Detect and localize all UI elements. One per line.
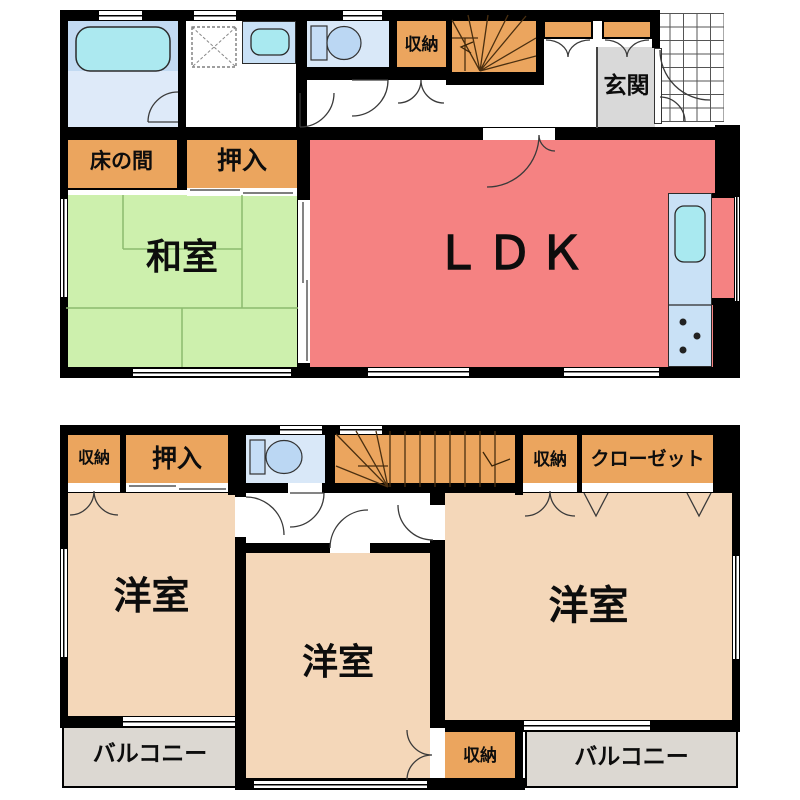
- room-label-storage-f2c: 収納: [445, 732, 515, 778]
- door-opening: [430, 728, 445, 778]
- room-label-closet-f2: クローゼット: [582, 435, 713, 483]
- wall: [60, 425, 740, 435]
- room-label-ldk: ＬＤＫ: [310, 195, 715, 310]
- window-icon: [98, 10, 143, 21]
- front-door-leaf: [654, 48, 662, 124]
- bathroom-wet-area: [68, 21, 178, 71]
- room-label-washitsu: 和室: [66, 218, 298, 296]
- door-opening: [288, 483, 322, 493]
- window-icon: [732, 555, 740, 660]
- room-label-genkan: 玄関: [598, 60, 655, 110]
- room-label-oshiire-f1: 押入: [187, 135, 297, 188]
- wall: [713, 425, 732, 483]
- wall: [389, 10, 397, 67]
- window-icon: [734, 196, 740, 302]
- hallway-f1-genkan-side: [544, 39, 596, 128]
- wall: [60, 10, 68, 378]
- shoe-cabinet-right: [602, 20, 652, 39]
- window-icon: [279, 425, 323, 435]
- room-label-oshiire-f2: 押入: [126, 435, 228, 483]
- sliding-door-icon: [126, 483, 228, 492]
- wall: [446, 10, 452, 80]
- window-icon: [563, 367, 660, 377]
- door-opening: [235, 497, 246, 537]
- window-icon: [193, 10, 237, 21]
- wall: [307, 67, 452, 80]
- washbasin-counter: [242, 21, 296, 64]
- wall: [652, 10, 660, 48]
- room-label-storage-f2b: 収納: [523, 435, 577, 483]
- stairs-f2: [335, 430, 515, 488]
- window-icon: [339, 425, 383, 435]
- window-icon: [342, 10, 383, 21]
- entrance-tiles-icon: [656, 13, 724, 122]
- wall: [177, 135, 187, 190]
- room-label-balcony-right: バルコニー: [525, 730, 738, 782]
- wall: [713, 303, 740, 367]
- shoe-cabinet-left: [543, 20, 593, 39]
- window-icon: [132, 368, 292, 377]
- wall: [178, 10, 186, 130]
- room-label-storage-f2a: 収納: [68, 435, 120, 483]
- wall: [228, 425, 246, 495]
- hallway-f1: [307, 80, 543, 127]
- sliding-door-icon: [187, 188, 297, 196]
- ldk-door-opening: [483, 128, 555, 140]
- wall: [446, 72, 544, 85]
- wall: [296, 10, 307, 127]
- floor-plan: 収納 玄関 床の間 押入 和室 ＬＤＫ 収納 押入 収納 クローゼット 洋室 洋…: [0, 0, 800, 800]
- room-label-western-middle: 洋室: [246, 622, 430, 702]
- toilet-room-f2: [246, 433, 325, 485]
- window-icon: [60, 548, 68, 658]
- door-opening: [330, 543, 370, 553]
- room-label-balcony-left: バルコニー: [62, 726, 238, 780]
- toilet-room-f1: [307, 21, 389, 67]
- window-icon: [367, 367, 470, 377]
- room-label-storage-f1: 収納: [397, 21, 446, 67]
- wall: [515, 722, 523, 790]
- door-opening: [523, 483, 577, 492]
- room-label-western-left: 洋室: [68, 557, 235, 637]
- wall: [515, 425, 523, 495]
- room-label-western-right: 洋室: [445, 565, 732, 647]
- window-icon: [253, 780, 428, 789]
- stairs-f1: [452, 15, 536, 72]
- room-label-tokonoma: 床の間: [66, 135, 177, 188]
- hallway-f2: [246, 493, 433, 543]
- door-opening: [430, 505, 445, 540]
- genkan-top-strip: [596, 39, 655, 47]
- door-opening: [582, 483, 713, 492]
- sliding-door-icon: [298, 200, 310, 363]
- wall: [325, 425, 335, 490]
- door-opening: [68, 483, 120, 492]
